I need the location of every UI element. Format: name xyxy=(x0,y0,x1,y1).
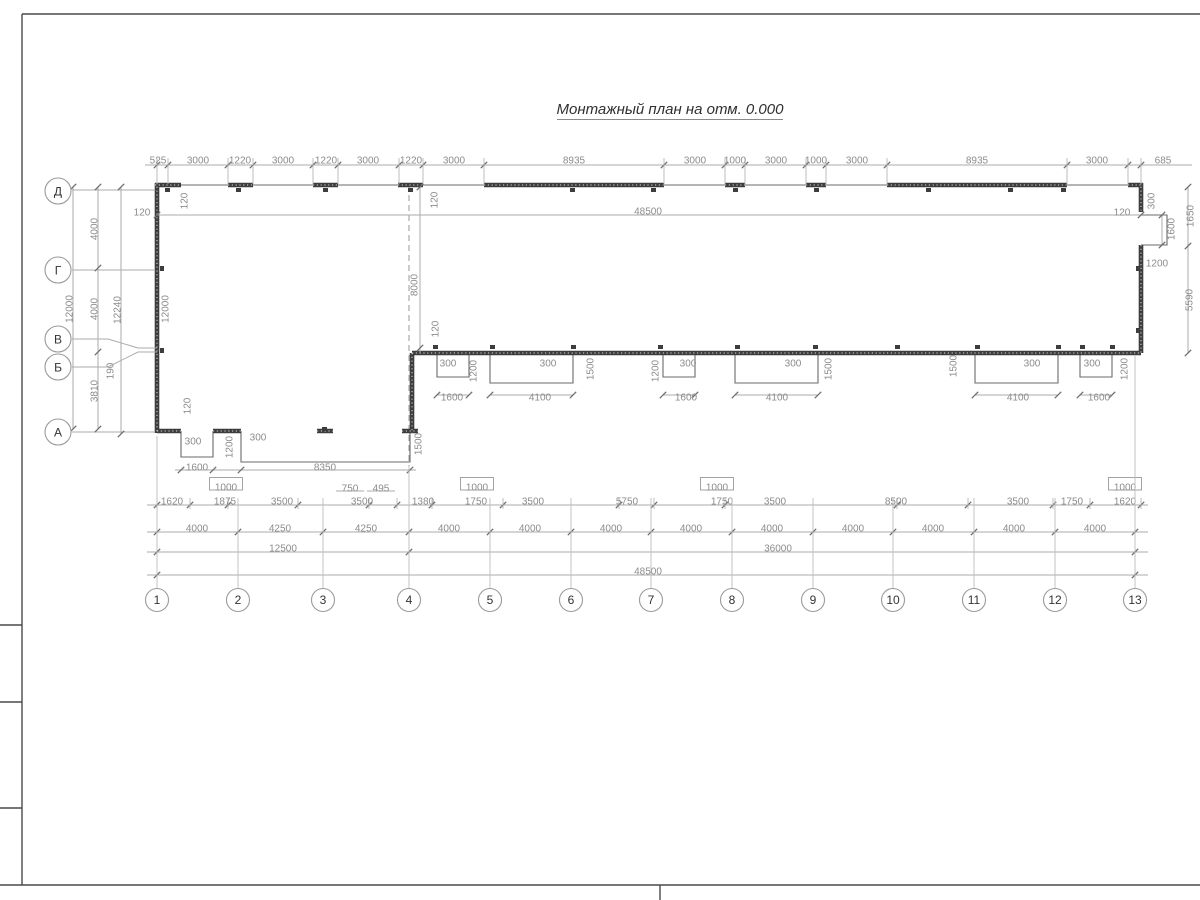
axis-letter: Д xyxy=(54,185,62,199)
dim-label: 4000 xyxy=(680,524,703,535)
dim-label: 12000 xyxy=(65,295,76,323)
dim-label: 300 xyxy=(440,359,457,370)
dim-label: 4000 xyxy=(600,524,623,535)
dim-label: 12500 xyxy=(269,544,297,555)
dim-label: 3000 xyxy=(272,156,295,167)
dim-label: 4000 xyxy=(842,524,865,535)
dim-label: 1500 xyxy=(414,432,425,455)
dim-label: 1380 xyxy=(412,497,435,508)
axis-letter: Б xyxy=(54,361,62,375)
dim-label: 120 xyxy=(431,320,442,337)
dim-label: 3000 xyxy=(684,156,707,167)
dim-label: 4000 xyxy=(90,297,101,320)
dim-label: 1000 xyxy=(706,483,729,494)
building xyxy=(72,183,1167,466)
dim-label: 1220 xyxy=(315,156,338,167)
axis-number: 1 xyxy=(154,593,161,607)
dim-label: 3000 xyxy=(187,156,210,167)
axis-number: 6 xyxy=(568,593,575,607)
dim-label: 1620 xyxy=(161,497,184,508)
dim-label: 4250 xyxy=(355,524,378,535)
dim-label: 36000 xyxy=(764,544,792,555)
dim-label: 3000 xyxy=(846,156,869,167)
dim-label: 300 xyxy=(1024,359,1041,370)
dim-label: 300 xyxy=(785,359,802,370)
dim-label: 3000 xyxy=(1086,156,1109,167)
axis-number: 9 xyxy=(810,593,817,607)
axis-number: 8 xyxy=(729,593,736,607)
dim-label: 5750 xyxy=(616,497,639,508)
dim-label: 1000 xyxy=(805,156,828,167)
dim-label: 48500 xyxy=(634,567,662,578)
dim-label: 4100 xyxy=(766,393,789,404)
dim-label: 120 xyxy=(183,397,194,414)
dim-label: 4000 xyxy=(761,524,784,535)
dim-label: 4000 xyxy=(186,524,209,535)
dim-label: 4000 xyxy=(519,524,542,535)
dim-label: 1600 xyxy=(1088,393,1111,404)
dim-label: 1220 xyxy=(229,156,252,167)
dim-label: 1500 xyxy=(824,357,835,380)
dim-label: 1200 xyxy=(1146,259,1169,270)
axis-number: 12 xyxy=(1048,593,1062,607)
dim-label: 1200 xyxy=(225,435,236,458)
dim-label: 1600 xyxy=(1167,217,1178,240)
axis-number: 2 xyxy=(235,593,242,607)
dim-label: 1000 xyxy=(1114,483,1137,494)
dim-label: 1000 xyxy=(466,483,489,494)
dim-label: 4000 xyxy=(922,524,945,535)
dim-label: 1750 xyxy=(711,497,734,508)
frame-left-boxes xyxy=(0,625,22,808)
plan-svg: 5253000122030001220300012203000893530001… xyxy=(0,0,1200,900)
axis-number: 3 xyxy=(320,593,327,607)
dim-label: 3000 xyxy=(357,156,380,167)
frame-border xyxy=(0,14,1200,885)
dim-label: 120 xyxy=(180,192,191,209)
dim-label: 1750 xyxy=(465,497,488,508)
dim-label: 8935 xyxy=(563,156,586,167)
dim-label: 8350 xyxy=(314,463,337,474)
dim-label: 1000 xyxy=(724,156,747,167)
dim-label: 1500 xyxy=(586,357,597,380)
dim-label: 4000 xyxy=(438,524,461,535)
dim-label: 3000 xyxy=(443,156,466,167)
axis-number: 11 xyxy=(968,593,981,607)
sheet-frame xyxy=(0,14,1200,900)
dim-label: 48500 xyxy=(634,207,662,218)
dim-label: 1650 xyxy=(1186,204,1197,227)
dim-label: 1600 xyxy=(186,463,209,474)
dim-label: 3500 xyxy=(522,497,545,508)
dim-label: 8000 xyxy=(410,273,421,296)
dim-label: 750 xyxy=(342,484,359,495)
dim-label: 300 xyxy=(250,433,267,444)
dim-label: 120 xyxy=(1114,208,1131,219)
building-thin-outline xyxy=(157,185,1167,462)
dim-label: 1875 xyxy=(214,497,237,508)
dim-label: 8935 xyxy=(966,156,989,167)
axis-number: 13 xyxy=(1128,593,1142,607)
dim-label: 685 xyxy=(1155,156,1172,167)
axis-letter: А xyxy=(54,426,62,440)
dim-label: 1620 xyxy=(1114,497,1137,508)
dim-label: 300 xyxy=(1147,192,1158,209)
dim-label: 525 xyxy=(150,156,167,167)
axis-number: 4 xyxy=(406,593,413,607)
dim-label: 3500 xyxy=(1007,497,1030,508)
dim-label: 1200 xyxy=(469,359,480,382)
dim-label: 4000 xyxy=(1084,524,1107,535)
dim-label: 190 xyxy=(106,362,117,379)
axis-number: 5 xyxy=(487,593,494,607)
dim-label: 120 xyxy=(430,191,441,208)
dim-label: 1200 xyxy=(1120,357,1131,380)
dim-label: 1600 xyxy=(675,393,698,404)
dim-label: 4100 xyxy=(1007,393,1030,404)
dim-label: 1000 xyxy=(215,483,238,494)
dim-label: 8500 xyxy=(885,497,908,508)
dim-label: 300 xyxy=(1084,359,1101,370)
dim-label: 4100 xyxy=(529,393,552,404)
dim-label: 1600 xyxy=(441,393,464,404)
dim-label: 5590 xyxy=(1185,288,1196,311)
dim-label: 1200 xyxy=(651,359,662,382)
dim-label: 3500 xyxy=(271,497,294,508)
dim-label: 495 xyxy=(373,484,390,495)
dim-label: 300 xyxy=(680,359,697,370)
dim-label: 12000 xyxy=(161,295,172,323)
dim-label: 12240 xyxy=(113,296,124,324)
dim-label: 4250 xyxy=(269,524,292,535)
dimension-labels: 5253000122030001220300012203000893530001… xyxy=(65,156,1197,578)
dim-label: 300 xyxy=(540,359,557,370)
dim-label: 3500 xyxy=(764,497,787,508)
axis-letter: Г xyxy=(55,264,62,278)
axis-number: 7 xyxy=(648,593,655,607)
dim-label: 120 xyxy=(134,208,151,219)
axis-letter: В xyxy=(54,333,62,347)
dim-label: 3810 xyxy=(90,379,101,402)
dim-label: 3000 xyxy=(765,156,788,167)
dim-label: 300 xyxy=(185,437,202,448)
dim-label: 1220 xyxy=(400,156,423,167)
drawing-sheet: Монтажный план на отм. 0.000 52530001220… xyxy=(0,0,1200,900)
dim-label: 1500 xyxy=(949,354,960,377)
dim-label: 3500 xyxy=(351,497,374,508)
dim-label: 1750 xyxy=(1061,497,1084,508)
dim-label: 4000 xyxy=(1003,524,1026,535)
axis-number: 10 xyxy=(886,593,900,607)
dim-label: 4000 xyxy=(90,217,101,240)
